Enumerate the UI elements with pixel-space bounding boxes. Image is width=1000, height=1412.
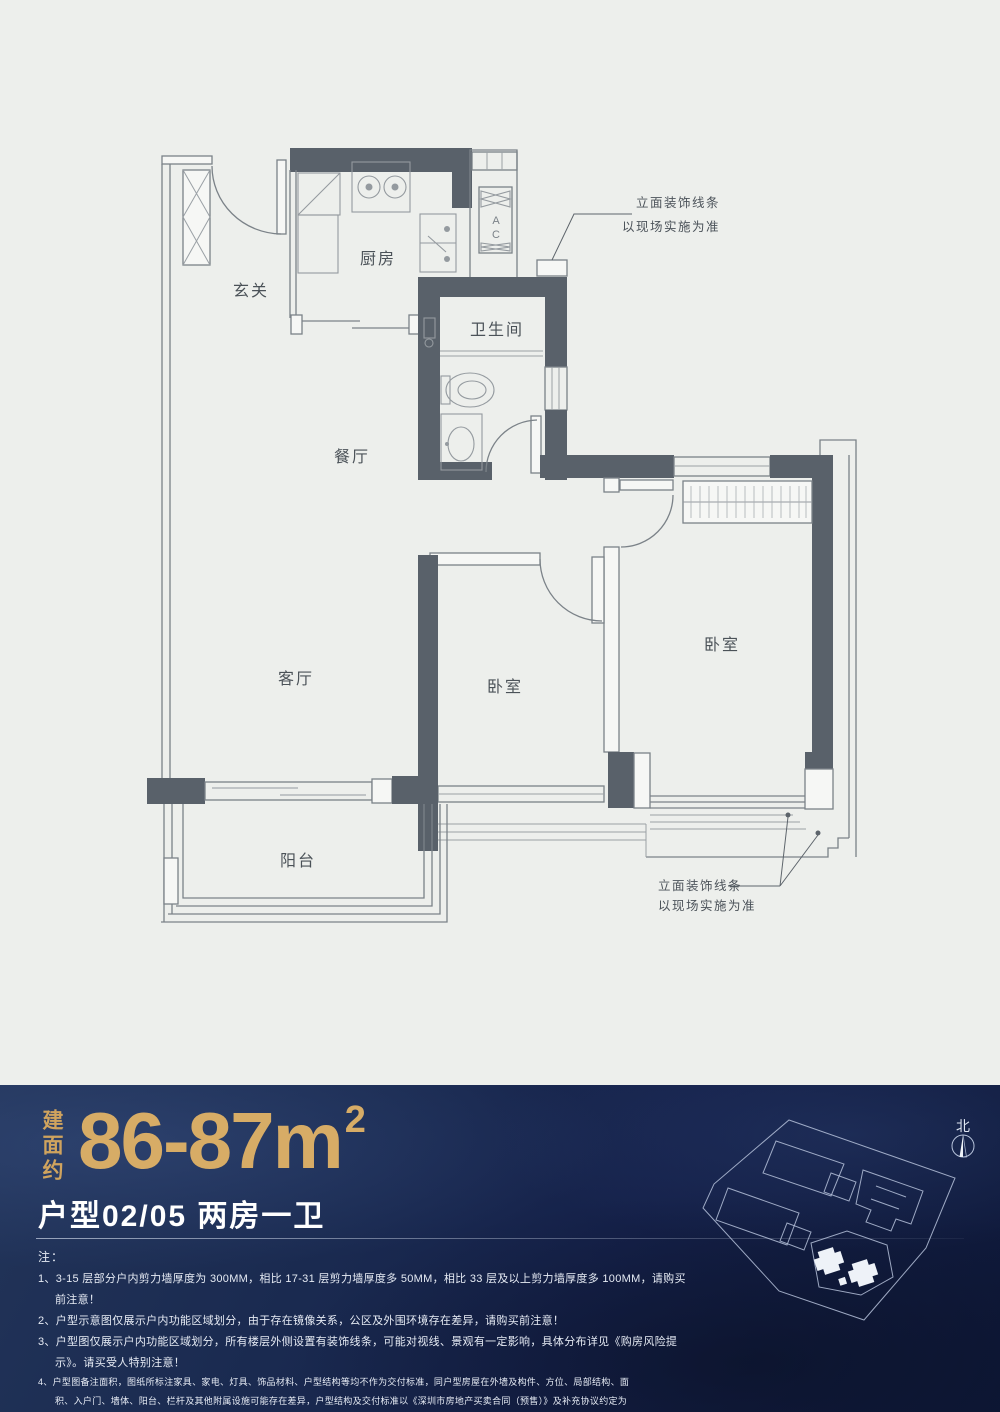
area-number: 86-87m xyxy=(78,1096,342,1185)
notes-block: 注： 1、3-15 层部分户内剪力墙厚度为 300MM，相比 17-31 层剪力… xyxy=(38,1248,688,1412)
bathroom-door-leaf xyxy=(531,416,541,473)
room-label-dining: 餐厅 xyxy=(334,448,370,466)
floorplan-page: A C xyxy=(0,0,1000,1412)
info-panel: 建面约 86-87m2 户型02/05 两房一卫 注： 1、3-15 层部分户内… xyxy=(0,1085,1000,1412)
bedroom-middle-door-leaf xyxy=(592,557,604,623)
ac-letter-a: A xyxy=(492,215,500,227)
floorplan-area: A C xyxy=(0,0,1000,1085)
bedroom-right: 卧室 xyxy=(540,455,833,829)
floorplan-svg: A C xyxy=(0,0,1000,1085)
unit-type-label: 户型02/05 两房一卫 xyxy=(38,1191,325,1235)
bath-sink-icon xyxy=(441,414,482,470)
room-label-bathroom: 卫生间 xyxy=(470,321,524,339)
balcony: 阳台 xyxy=(161,804,447,922)
room-label-balcony: 阳台 xyxy=(280,852,316,870)
note-item: 1、3-15 层部分户内剪力墙厚度为 300MM，相比 17-31 层剪力墙厚度… xyxy=(38,1269,688,1311)
toilet-icon xyxy=(441,373,494,407)
entry-door-leaf xyxy=(277,160,286,234)
entry-wall xyxy=(162,156,286,778)
room-label-bedroom-right: 卧室 xyxy=(704,636,740,654)
facade-annotation-top: 立面装饰线条 以现场实施为准 xyxy=(537,195,720,276)
ac-unit: A C xyxy=(479,187,512,253)
area-headline: 建面约 86-87m2 xyxy=(36,1103,366,1187)
note-item: 4、户型图备注面积，图纸所标注家具、家电、灯具、饰品材料、户型结构等均不作为交付… xyxy=(38,1373,643,1412)
north-label: 北 xyxy=(956,1118,970,1134)
living-balcony-band xyxy=(147,776,438,804)
note-item: 3、户型图仅展示户内功能区域划分，所有楼层外侧设置有装饰线条，可能对视线、景观有… xyxy=(38,1332,688,1374)
north-indicator: 北 xyxy=(952,1118,974,1157)
area-value: 86-87m2 xyxy=(78,1103,366,1178)
area-superscript: 2 xyxy=(345,1099,366,1141)
bedroom-right-door-leaf xyxy=(620,480,673,490)
bathroom: 卫生间 xyxy=(418,277,567,480)
entry-door-arc xyxy=(212,166,281,234)
facade-note-top-line2: 以现场实施为准 xyxy=(622,219,720,234)
facade-note-top-line1: 立面装饰线条 xyxy=(636,195,720,210)
window-hatch xyxy=(183,170,210,265)
sitemap-svg: 北 xyxy=(701,1091,986,1341)
facade-annotation-bottom: 立面装饰线条 以现场实施为准 xyxy=(658,813,821,914)
north-needle-icon xyxy=(960,1135,964,1157)
ac-letter-c: C xyxy=(492,229,500,241)
site-outline xyxy=(703,1120,955,1320)
bathroom-door-arc xyxy=(486,420,537,472)
note-item: 2、户型示意图仅展示户内功能区域划分，由于存在镜像关系，公区及外围环境存在差异，… xyxy=(38,1311,688,1332)
room-label-living: 客厅 xyxy=(278,670,314,688)
wardrobe-icon xyxy=(683,481,812,523)
highlight-towers xyxy=(812,1245,880,1288)
fridge-icon xyxy=(298,173,340,273)
room-label-kitchen: 厨房 xyxy=(360,250,396,268)
room-label-entry: 玄关 xyxy=(233,282,269,300)
notes-title: 注： xyxy=(38,1248,688,1265)
facade-note-bottom-line1: 立面装饰线条 xyxy=(658,878,742,893)
sitemap: 北 xyxy=(701,1091,986,1341)
kitchen-sink-icon xyxy=(420,214,456,272)
facade-note-bottom-line2: 以现场实施为准 xyxy=(658,898,756,913)
kitchen: A C xyxy=(290,148,517,334)
area-prefix: 建面约 xyxy=(36,1109,66,1187)
bedroom-right-door-arc xyxy=(621,495,673,547)
room-label-bedroom-middle: 卧室 xyxy=(487,678,523,696)
kitchen-sliding-door xyxy=(291,315,420,334)
